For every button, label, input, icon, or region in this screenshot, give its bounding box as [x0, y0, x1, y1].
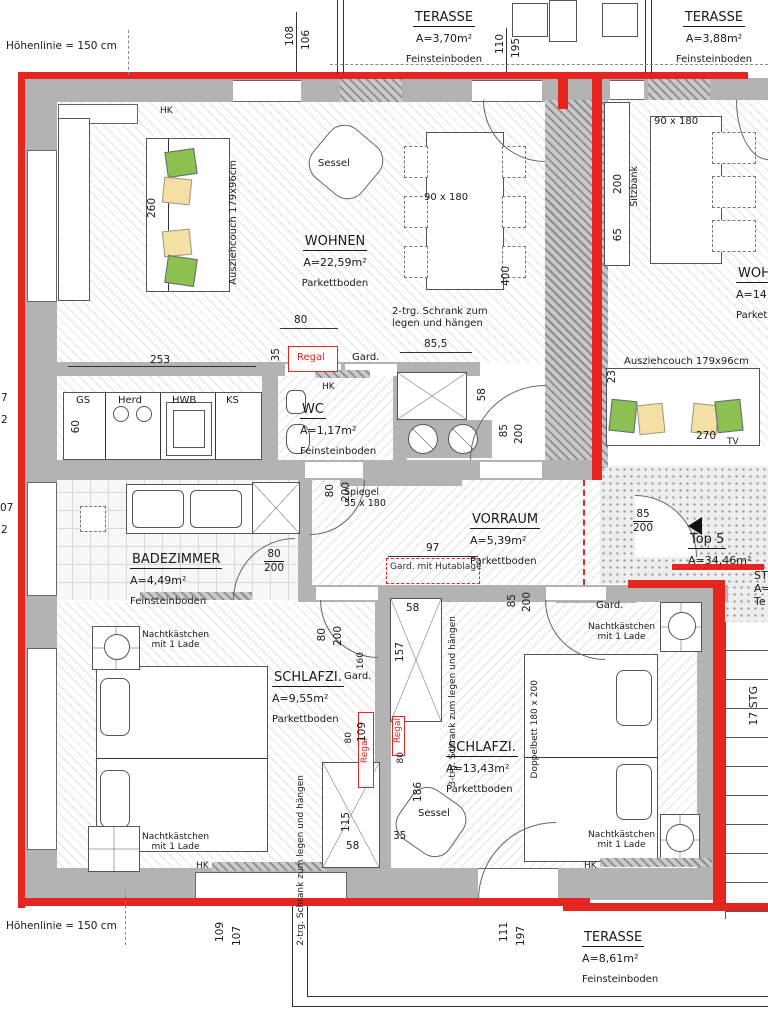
stairs-count-label: 17 STG — [748, 686, 761, 726]
dim-107: 107 — [231, 926, 243, 946]
wall-hatch-block-2 — [648, 78, 710, 100]
room-floor: Parket — [736, 310, 767, 321]
partial-dim: 07 — [0, 502, 13, 514]
hk-label: HK — [584, 861, 597, 871]
red-outline-bottom-2 — [563, 903, 768, 911]
schrank-line2: legen und hängen — [448, 616, 458, 698]
dim-270: 270 — [696, 430, 716, 442]
room-name: VORRAUM — [470, 512, 540, 529]
dim-35: 35 — [270, 348, 282, 361]
unit-name: Top 5 — [688, 532, 726, 549]
room-floor: Feinsteinboden — [300, 446, 376, 457]
dim-85-200-entry: 85 200 — [624, 508, 662, 534]
dim-line-855 — [400, 352, 472, 353]
nacht-line2: mit 1 Lade — [152, 842, 200, 852]
heightline-dash-bottom — [125, 890, 126, 945]
bath-basin — [132, 490, 184, 528]
sitzbank-label: Sitzbank — [630, 166, 641, 207]
dim-200: 200 — [521, 592, 533, 612]
red-outline-top — [18, 72, 602, 79]
pillow — [100, 678, 130, 736]
room-name: SCHLAFZI. — [272, 670, 344, 687]
kitchen-hwb-label: HWB — [172, 395, 196, 407]
schrank-line1: 2-trg. Schrank zum — [392, 306, 488, 317]
bath-basin — [190, 490, 242, 528]
dim-197: 197 — [515, 926, 527, 946]
dim-top: 80 — [264, 548, 283, 562]
terrace-side-line — [651, 0, 652, 74]
window-left-3 — [27, 648, 57, 850]
dim-97: 97 — [426, 542, 439, 554]
room-label-wohnen: WOHNEN A=22,59m² Parkettboden — [280, 230, 390, 291]
nightstand-lamp — [668, 612, 696, 640]
pillow-green-4 — [714, 399, 743, 434]
nacht-line1: Nachtkästchen — [588, 830, 655, 840]
pillow — [100, 770, 130, 828]
schrank-line2: legen und hängen — [296, 775, 306, 857]
radiator-bedl — [212, 862, 326, 871]
nacht-line1: Nachtkästchen — [142, 630, 209, 640]
chair — [712, 176, 756, 208]
kitchen-divider — [160, 393, 161, 459]
opening-bedl-door — [316, 587, 378, 600]
room-name: TERASSE — [413, 10, 475, 27]
ausziehcouch-label-neighbor: Ausziehcouch 179x96cm — [624, 356, 749, 368]
partial-right-2: A= — [754, 583, 768, 596]
hob-burner — [136, 406, 152, 422]
hk-label: HK — [196, 861, 209, 871]
pillow-yellow-2 — [162, 229, 193, 258]
dim-195: 195 — [510, 38, 522, 58]
hob-burner — [113, 406, 129, 422]
terrace-door-bottom-left — [195, 872, 347, 900]
gard-label: Gard. — [352, 352, 379, 364]
dim-line-253 — [68, 366, 256, 367]
radiator-bedr — [600, 858, 712, 867]
pillow-yellow-3 — [637, 403, 666, 436]
window-left-1 — [27, 150, 57, 302]
nacht-line1: Nachtkästchen — [142, 832, 209, 842]
room-area: A=5,39m² — [470, 534, 526, 547]
dim-58: 58 — [346, 840, 359, 852]
room-label-wc: WC A=1,17m² Feinsteinboden — [300, 398, 390, 459]
partial-dim: 7 — [1, 392, 8, 404]
dim-bottom: 200 — [264, 562, 284, 574]
staircase — [725, 622, 768, 919]
terrace-side-line — [343, 0, 344, 74]
dim-80: 80 — [344, 732, 354, 743]
nachtkaestchen-label: Nachtkästchen mit 1 Lade — [142, 630, 209, 651]
pillow-green-1 — [164, 148, 197, 178]
wall-hatch-block-1 — [340, 78, 402, 102]
nachtkaestchen-label: Nachtkästchen mit 1 Lade — [588, 830, 655, 851]
room-area: A=3,88m² — [686, 32, 742, 45]
dim-260: 260 — [146, 198, 158, 218]
room-floor: Feinsteinboden — [130, 596, 206, 607]
gard-hutablage-label: Gard. mit Hutablage — [390, 562, 482, 572]
floor-plan: Höhenlinie = 150 cm Höhenlinie = 150 cm … — [0, 0, 768, 1020]
room-label-badezimmer: BADEZIMMER A=4,49m² Feinsteinboden — [130, 548, 240, 609]
room-name: WOH — [736, 266, 768, 283]
dim-top: 85 — [633, 508, 652, 522]
opening-bedr-door — [546, 587, 606, 600]
dim-253: 253 — [150, 354, 170, 366]
terrace-chair — [512, 3, 548, 37]
dim-200: 200 — [513, 424, 525, 444]
gard-label: Gard. — [344, 671, 371, 683]
dim-111: 111 — [498, 922, 510, 942]
opening-entry-wohnen — [480, 462, 542, 478]
gard-label: Gard. — [596, 600, 623, 612]
room-floor: Parkettboden — [272, 714, 339, 725]
window-left-2 — [27, 482, 57, 596]
opening-wc-door — [305, 462, 363, 478]
laundry-basket — [80, 506, 106, 532]
table-size-label: 90 x 180 — [424, 192, 468, 204]
room-floor: Feinsteinboden — [582, 974, 658, 985]
kitchen-gs-label: GS — [76, 395, 90, 407]
dim-200: 200 — [340, 482, 352, 502]
dim-110: 110 — [494, 34, 506, 54]
sessel-label: Sessel — [318, 158, 350, 170]
chair — [404, 146, 428, 178]
schrank-3trg-label: 3-trg. Schrank zum legen und hängen — [448, 616, 458, 787]
nacht-line1: Nachtkästchen — [588, 622, 655, 632]
wall-bottom — [25, 868, 725, 900]
dim-400: 400 — [500, 266, 512, 286]
room-label-terrasse-bottom: TERASSE A=8,61m² Feinsteinboden — [582, 926, 682, 987]
partial-right-3: Te — [754, 596, 766, 609]
nachtkaestchen-label: Nachtkästchen mit 1 Lade — [588, 622, 655, 643]
dim-60: 60 — [70, 420, 82, 433]
partial-dim: 2 — [1, 524, 8, 536]
dim-108: 108 — [284, 26, 296, 46]
chair — [502, 196, 526, 228]
nacht-line2: mit 1 Lade — [598, 632, 646, 642]
room-name: TERASSE — [683, 10, 745, 27]
room-floor: Feinsteinboden — [676, 54, 752, 65]
room-name: WC — [300, 402, 326, 419]
red-party-wall — [592, 79, 602, 480]
dim-157: 157 — [394, 642, 406, 662]
terrace-side-line — [645, 0, 646, 74]
unit-label-top5: Top 5 A=34,46m² — [688, 528, 768, 569]
terrace-side-line — [337, 0, 338, 74]
dim-200: 200 — [612, 174, 624, 194]
table-size-label-neighbor: 90 x 180 — [654, 116, 698, 128]
room-name: BADEZIMMER — [130, 552, 222, 569]
dim-160: 160 — [356, 652, 366, 669]
pillow-green-3 — [608, 399, 637, 434]
terrace-door-top — [472, 80, 542, 102]
pillow-yellow-1 — [162, 177, 193, 206]
hk-label: HK — [160, 106, 173, 116]
chair — [712, 220, 756, 252]
pillow — [616, 764, 652, 820]
dim-58: 58 — [476, 388, 488, 401]
room-area: A=8,61m² — [582, 952, 638, 965]
room-label-terrasse-right: TERASSE A=3,88m² Feinsteinboden — [664, 6, 764, 67]
ausziehcouch-label: Ausziehcouch 179x96cm — [228, 160, 240, 285]
dim-106: 106 — [300, 30, 312, 50]
pillow-green-2 — [164, 255, 198, 287]
bed-right-split — [525, 757, 657, 758]
terrace-bottom-h2 — [292, 1006, 768, 1007]
sessel-label: Sessel — [418, 808, 450, 820]
dim-35: 35 — [393, 830, 406, 842]
nightstand — [88, 826, 140, 872]
room-area: A=14 — [736, 288, 767, 301]
kitchen-herd-label: Herd — [118, 395, 142, 407]
dim-85: 85 — [506, 594, 518, 607]
dim-200: 200 — [332, 626, 344, 646]
dim-80: 80 — [324, 484, 336, 497]
dim-65: 65 — [612, 228, 624, 241]
room-label-terrasse-top: TERASSE A=3,70m² Feinsteinboden — [398, 6, 490, 67]
kitchen-ks-label: KS — [226, 395, 239, 407]
tv-label: TV — [727, 437, 739, 447]
room-name: TERASSE — [582, 930, 644, 947]
window-top-1 — [233, 80, 301, 102]
kitchen-divider — [105, 393, 106, 459]
chair — [404, 246, 428, 278]
schrank-2trg-bottom-label: 2-trg. Schrank zum legen und hängen — [296, 775, 306, 946]
room-area: A=4,49m² — [130, 574, 186, 587]
pillow — [616, 670, 652, 726]
sideboard — [58, 118, 90, 301]
dim-line-80 — [280, 328, 338, 329]
dim-115: 115 — [340, 812, 352, 832]
dim-58: 58 — [406, 602, 419, 614]
red-outline-right — [713, 583, 725, 911]
schrank-2trg-label: 2-trg. Schrank zum legen und hängen — [392, 306, 488, 329]
wardrobe-2trg-top — [397, 372, 467, 420]
partial-dim: 2 — [1, 414, 8, 426]
terrace-bottom-v1 — [292, 906, 293, 1007]
schrank-line1: 2-trg. Schrank zum — [296, 860, 306, 946]
room-area: A=1,17m² — [300, 424, 356, 437]
room-label-wohnen-neighbor: WOH A=14 Parket — [736, 262, 768, 323]
room-area: A=9,55m² — [272, 692, 328, 705]
dim-109: 109 — [214, 922, 226, 942]
nachtkaestchen-label: Nachtkästchen mit 1 Lade — [142, 832, 209, 853]
unit-area: A=34,46m² — [688, 554, 751, 567]
red-corner — [558, 79, 568, 109]
dim-line-97 — [388, 556, 478, 557]
heightline-dash-top — [128, 30, 129, 75]
shower — [252, 482, 300, 534]
kitchen-divider — [215, 393, 216, 459]
dining-table — [426, 132, 504, 290]
height-line-label-bottom: Höhenlinie = 150 cm — [6, 920, 117, 932]
terrace-table — [549, 0, 577, 42]
room-label-vorraum: VORRAUM A=5,39m² Parkettboden — [470, 508, 580, 569]
red-entry-door-line — [583, 480, 585, 585]
sink-basin — [173, 410, 205, 448]
room-area: A=3,70m² — [416, 32, 472, 45]
dim-line — [296, 12, 297, 72]
schrank-line2: legen und hängen — [392, 318, 483, 329]
room-name: WOHNEN — [303, 234, 368, 251]
bed-left-split — [97, 758, 267, 759]
nightstand-lamp — [104, 634, 130, 660]
nightstand-lamp — [666, 824, 694, 852]
terrace-chair — [602, 3, 638, 37]
regal-label: Regal — [393, 718, 403, 743]
dim-186: 186 — [412, 782, 424, 802]
washing-machine — [408, 424, 438, 454]
hk-label: HK — [322, 382, 335, 392]
dim-80: 80 — [396, 752, 406, 763]
window-top-neighbor — [610, 80, 644, 100]
terrace-bottom-h1 — [307, 996, 768, 997]
schrank-line1: 3-trg. Schrank zum — [448, 701, 458, 787]
dim-line — [506, 28, 507, 72]
wall-kitchen-wc — [262, 376, 278, 462]
nacht-line2: mit 1 Lade — [152, 640, 200, 650]
doppelbett-label: Doppelbett 180 x 200 — [530, 680, 540, 778]
dim-855: 85,5 — [424, 338, 447, 350]
red-outline-entry — [628, 580, 725, 588]
dim-109: 109 — [356, 722, 368, 742]
room-label-schlafzimmer-right: SCHLAFZI. A=13,43m² Parkettboden — [446, 736, 536, 797]
room-area: A=22,59m² — [303, 256, 366, 269]
dim-80-200-bad: 80 200 — [256, 548, 292, 574]
room-floor: Parkettboden — [302, 278, 369, 289]
red-outline-left — [18, 72, 25, 908]
room-floor: Feinsteinboden — [406, 54, 482, 65]
dim-80: 80 — [294, 314, 307, 326]
height-line-label-top: Höhenlinie = 150 cm — [6, 40, 117, 52]
red-outline-top-neighbor — [598, 72, 748, 79]
dim-23: 23 — [606, 370, 618, 383]
dim-bottom: 200 — [633, 522, 653, 534]
terrace-bottom-v2 — [307, 906, 308, 996]
dim-80: 80 — [316, 628, 328, 641]
nacht-line2: mit 1 Lade — [598, 840, 646, 850]
partial-right-1: ST — [754, 570, 768, 583]
dim-85: 85 — [498, 424, 510, 437]
regal-label: Regal — [297, 352, 325, 364]
